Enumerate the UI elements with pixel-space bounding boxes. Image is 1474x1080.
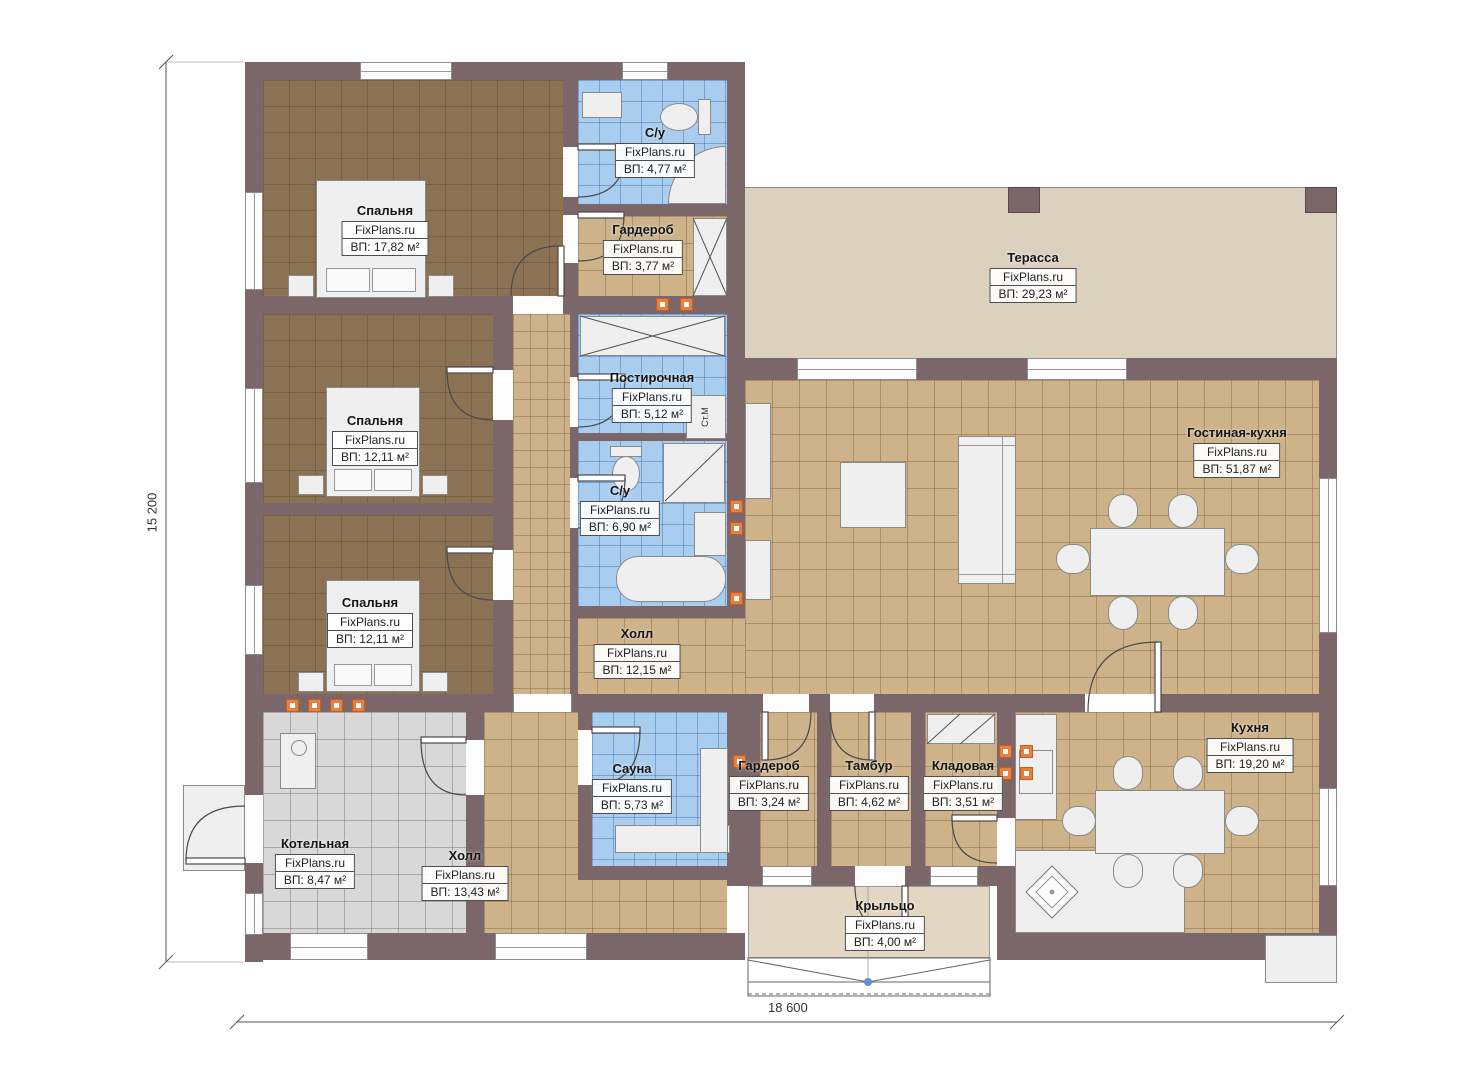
chair xyxy=(1108,494,1138,528)
bathtub xyxy=(616,556,726,602)
chair xyxy=(1168,494,1198,528)
room-label-terrace: Терасса FixPlans.ru ВП: 29,23 м² xyxy=(990,250,1077,303)
vent-marker xyxy=(999,745,1012,758)
door-opening xyxy=(493,550,513,600)
door-opening xyxy=(570,478,578,528)
vent-marker xyxy=(656,298,669,311)
terrace-column xyxy=(1305,187,1337,213)
door-opening xyxy=(570,377,578,427)
room-area: ВП: 12,15 м² xyxy=(595,662,680,678)
room-label-boiler: Котельная FixPlans.ru ВП: 8,47 м² xyxy=(275,836,355,889)
chair xyxy=(1056,544,1090,574)
vent-marker xyxy=(730,522,743,535)
vent-marker xyxy=(330,699,343,712)
height-dimension-label: 15 200 xyxy=(144,493,159,533)
wall xyxy=(578,866,732,880)
width-dimension-label: 18 600 xyxy=(768,1000,808,1015)
room-label-wardrobe-1: Гардероб FixPlans.ru ВП: 3,77 м² xyxy=(603,222,683,275)
window xyxy=(930,866,978,886)
toilet-tank xyxy=(698,99,711,135)
vent-marker xyxy=(680,298,693,311)
chair xyxy=(1168,596,1198,630)
wall xyxy=(578,204,727,216)
sink xyxy=(582,92,622,118)
room-label-porch: Крыльцо FixPlans.ru ВП: 4,00 м² xyxy=(845,898,925,951)
window xyxy=(245,192,263,290)
room-area: ВП: 4,62 м² xyxy=(830,794,908,810)
room-area: ВП: 3,24 м² xyxy=(730,794,808,810)
corridor-floor xyxy=(513,314,570,712)
watermark: FixPlans.ru xyxy=(613,389,691,406)
room-label-sauna: Сауна FixPlans.ru ВП: 5,73 м² xyxy=(592,761,672,814)
window xyxy=(1319,788,1337,886)
window xyxy=(245,893,263,935)
dining-table xyxy=(1090,528,1225,596)
room-label-living-kitchen: Гостиная-кухня FixPlans.ru ВП: 51,87 м² xyxy=(1187,425,1287,478)
nightstand xyxy=(428,275,454,297)
room-area: ВП: 5,12 м² xyxy=(613,406,691,422)
room-area: ВП: 3,51 м² xyxy=(924,794,1002,810)
watermark: FixPlans.ru xyxy=(593,780,671,797)
tv-stand xyxy=(745,403,771,499)
room-area: ВП: 6,90 м² xyxy=(581,519,659,535)
window xyxy=(797,358,917,380)
vent-marker xyxy=(286,699,299,712)
door-opening xyxy=(493,370,513,420)
watermark: FixPlans.ru xyxy=(991,269,1076,286)
vent-marker xyxy=(730,500,743,513)
nightstand xyxy=(298,475,324,495)
window xyxy=(245,585,263,655)
wall xyxy=(245,62,745,80)
vent-marker xyxy=(352,699,365,712)
boiler-unit xyxy=(280,733,316,789)
door-opening xyxy=(513,296,563,314)
laundry-cabinet xyxy=(580,316,725,356)
floor-plan: Ст.М xyxy=(0,0,1474,1080)
nightstand xyxy=(422,475,448,495)
door-opening xyxy=(763,694,809,712)
door-opening xyxy=(245,795,263,863)
window xyxy=(495,933,587,960)
watermark: FixPlans.ru xyxy=(924,777,1002,794)
coffee-table xyxy=(840,462,906,528)
wardrobe-cabinet xyxy=(693,218,727,296)
wall xyxy=(263,503,493,515)
watermark: FixPlans.ru xyxy=(333,432,417,449)
room-area: ВП: 8,47 м² xyxy=(276,872,354,888)
entry-door-opening xyxy=(855,866,905,886)
watermark: FixPlans.ru xyxy=(1208,739,1293,756)
exterior-step xyxy=(183,785,245,871)
watermark: FixPlans.ru xyxy=(276,855,354,872)
room-area: ВП: 12,11 м² xyxy=(333,449,417,465)
chair xyxy=(1062,806,1096,836)
watermark: FixPlans.ru xyxy=(846,917,924,934)
window xyxy=(245,388,263,483)
cased-opening xyxy=(513,694,572,712)
chair xyxy=(1113,854,1143,888)
wall xyxy=(570,606,745,618)
chair xyxy=(1173,854,1203,888)
nightstand xyxy=(422,672,448,692)
door-opening xyxy=(563,147,578,197)
room-area: ВП: 5,73 м² xyxy=(593,797,671,813)
room-area: ВП: 4,00 м² xyxy=(846,934,924,950)
room-label-bedroom-3: Спальня FixPlans.ru ВП: 12,11 м² xyxy=(327,595,413,648)
room-label-hall-2: Холл FixPlans.ru ВП: 13,43 м² xyxy=(422,848,509,901)
chair xyxy=(1113,756,1143,790)
door-opening xyxy=(997,818,1015,866)
window xyxy=(1319,478,1337,633)
window xyxy=(762,866,812,886)
door-opening xyxy=(466,740,484,795)
window xyxy=(290,933,368,960)
room-area: ВП: 4,77 м² xyxy=(616,161,694,177)
storage-shelf xyxy=(927,714,995,744)
room-label-bedroom-1: Спальня FixPlans.ru ВП: 17,82 м² xyxy=(342,203,429,256)
sauna-bench xyxy=(700,748,728,853)
cased-opening xyxy=(1085,694,1160,712)
room-label-bathroom-1: С/у FixPlans.ru ВП: 4,77 м² xyxy=(615,125,695,178)
window xyxy=(622,62,668,80)
room-label-kitchen: Кухня FixPlans.ru ВП: 19,20 м² xyxy=(1207,720,1294,773)
door-opening xyxy=(563,215,578,263)
room-label-bedroom-2: Спальня FixPlans.ru ВП: 12,11 м² xyxy=(332,413,418,466)
watermark: FixPlans.ru xyxy=(328,614,412,631)
watermark: FixPlans.ru xyxy=(1195,444,1280,461)
room-area: ВП: 51,87 м² xyxy=(1195,461,1280,477)
room-label-wardrobe-2: Гардероб FixPlans.ru ВП: 3,24 м² xyxy=(729,758,809,811)
dining-table xyxy=(1095,790,1225,854)
room-area: ВП: 12,11 м² xyxy=(328,631,412,647)
exterior-step xyxy=(1265,935,1337,983)
room-area: ВП: 13,43 м² xyxy=(423,884,508,900)
chair xyxy=(1108,596,1138,630)
watermark: FixPlans.ru xyxy=(830,777,908,794)
terrace-column xyxy=(1008,187,1040,213)
room-area: ВП: 3,77 м² xyxy=(604,258,682,274)
room-label-storage: Кладовая FixPlans.ru ВП: 3,51 м² xyxy=(923,758,1003,811)
vent-marker xyxy=(1020,745,1033,758)
washing-machine-label: Ст.М xyxy=(700,407,710,427)
sink xyxy=(694,512,726,556)
wall xyxy=(997,694,1015,933)
door-opening xyxy=(830,694,874,712)
nightstand xyxy=(298,672,324,692)
room-area: ВП: 17,82 м² xyxy=(343,239,428,255)
watermark: FixPlans.ru xyxy=(604,241,682,258)
watermark: FixPlans.ru xyxy=(581,502,659,519)
watermark: FixPlans.ru xyxy=(423,867,508,884)
window xyxy=(1027,358,1127,380)
chair xyxy=(1173,756,1203,790)
vent-marker xyxy=(730,592,743,605)
room-area: ВП: 29,23 м² xyxy=(991,286,1076,302)
watermark: FixPlans.ru xyxy=(616,144,694,161)
room-label-laundry: Постирочная FixPlans.ru ВП: 5,12 м² xyxy=(610,370,694,423)
chair xyxy=(1225,544,1259,574)
chair xyxy=(1225,806,1259,836)
vent-marker xyxy=(1020,767,1033,780)
nightstand xyxy=(288,275,314,297)
watermark: FixPlans.ru xyxy=(595,645,680,662)
watermark: FixPlans.ru xyxy=(343,222,428,239)
vent-marker xyxy=(308,699,321,712)
door-opening xyxy=(578,730,592,785)
window xyxy=(360,62,452,80)
kitchen-counter xyxy=(1015,850,1185,933)
sofa xyxy=(958,436,1016,584)
room-area: ВП: 19,20 м² xyxy=(1208,756,1293,772)
shower-cabin xyxy=(663,443,725,503)
watermark: FixPlans.ru xyxy=(730,777,808,794)
room-label-bathroom-2: С/у FixPlans.ru ВП: 6,90 м² xyxy=(580,483,660,536)
room-label-tambour: Тамбур FixPlans.ru ВП: 4,62 м² xyxy=(829,758,909,811)
cabinet xyxy=(745,540,771,600)
room-label-hall-1: Холл FixPlans.ru ВП: 12,15 м² xyxy=(594,626,681,679)
